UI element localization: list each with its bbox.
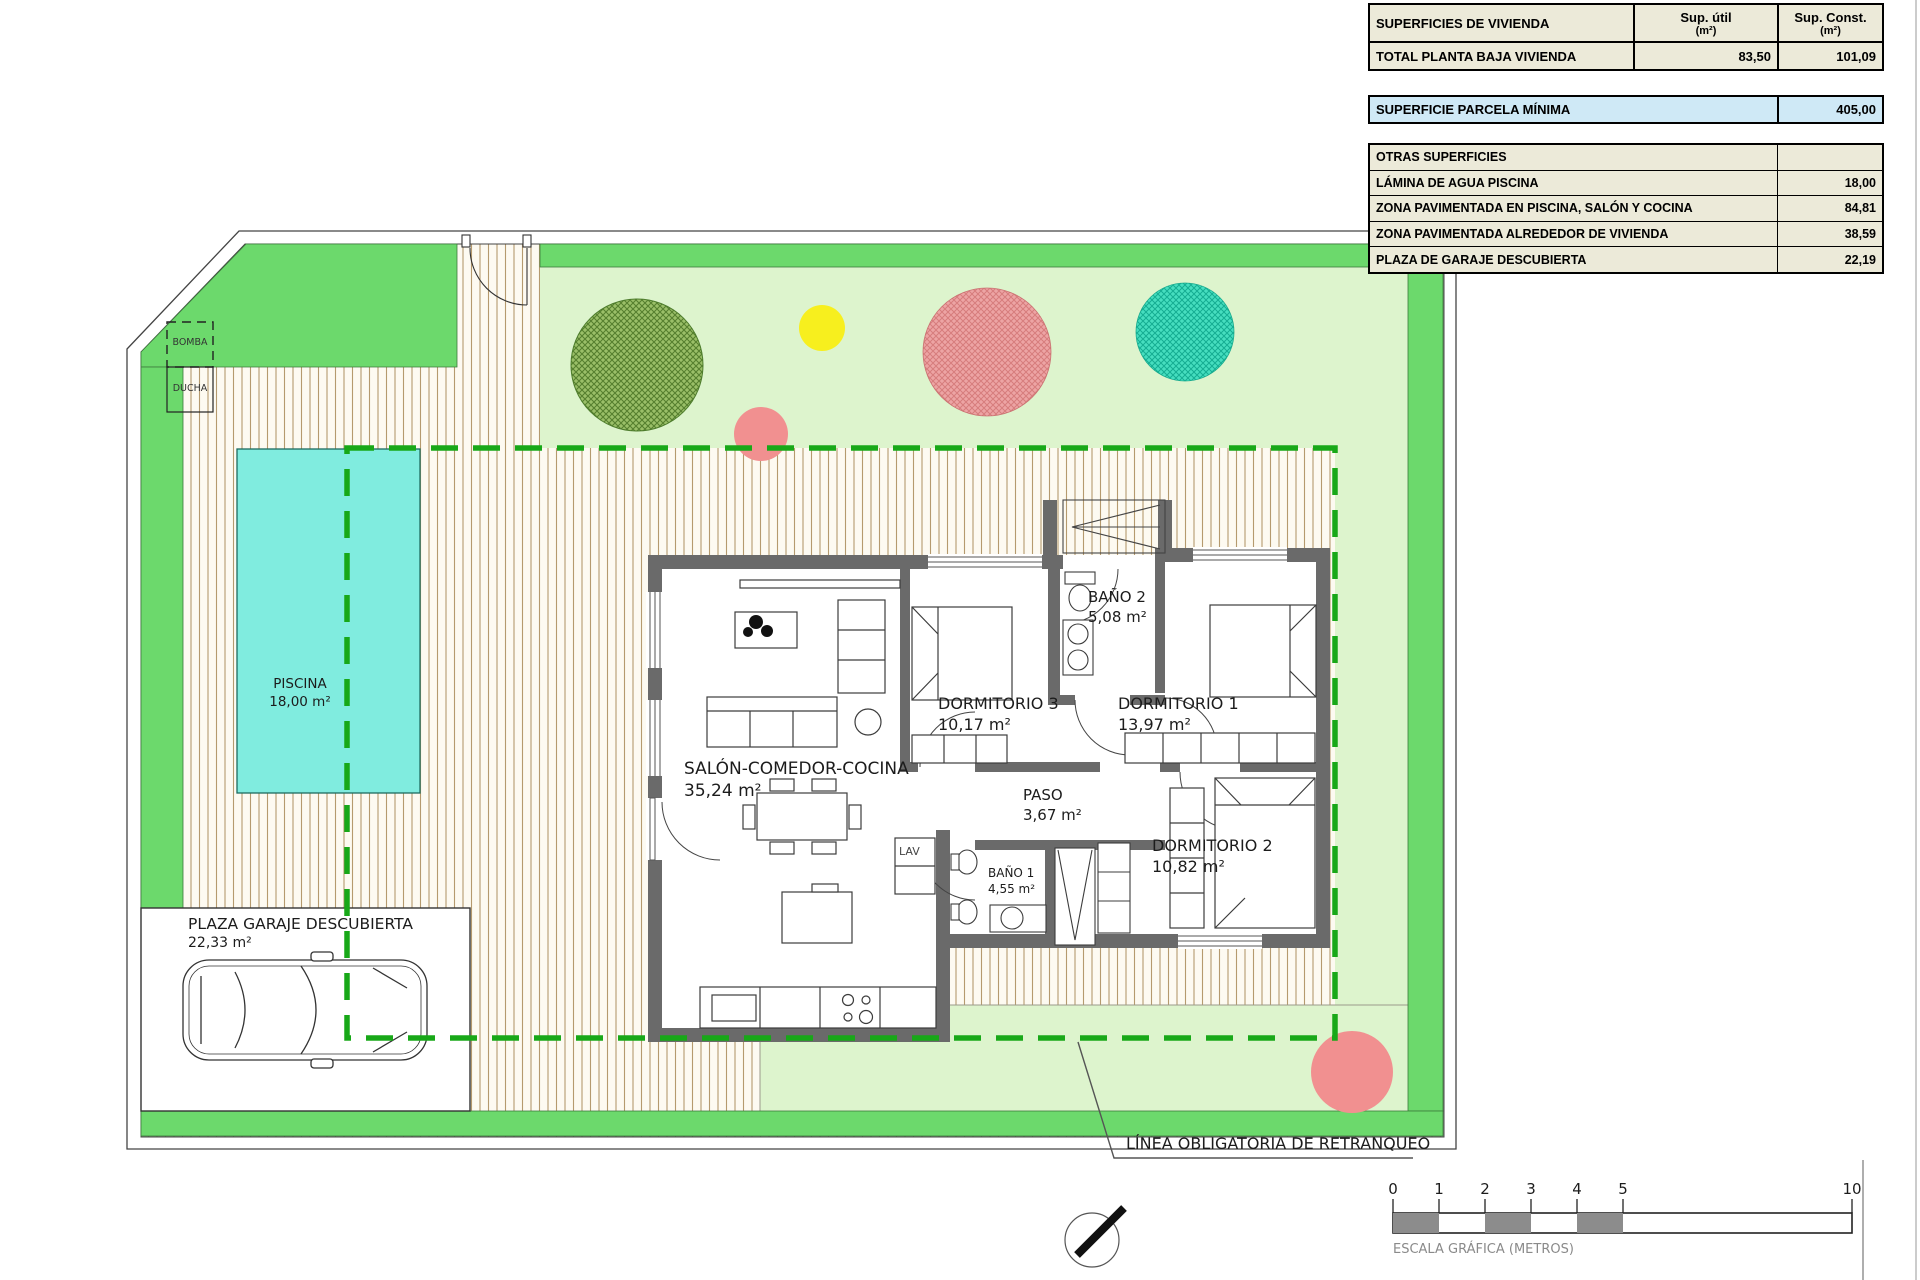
dormitorio1-area: 13,97 m² [1118,715,1239,736]
pool [237,449,420,793]
total-util-value: 83,50 [1633,43,1777,69]
otras-row-label: LÁMINA DE AGUA PISCINA [1370,171,1777,196]
dormitorio2-name: DORMITORIO 2 [1152,836,1273,855]
site-plan-page: SUPERFICIES DE VIVIENDA Sup. útil (m²) S… [0,0,1920,1280]
otras-row-value: 84,81 [1777,196,1882,221]
north-indicator-icon [1065,1208,1124,1267]
scale-caption: ESCALA GRÁFICA (METROS) [1393,1242,1574,1259]
otras-row-value: 38,59 [1777,222,1882,247]
scale-tick-2: 2 [1470,1180,1500,1200]
otras-row-label: PLAZA DE GARAJE DESCUBIERTA [1370,247,1777,272]
scale-tick-0: 0 [1378,1180,1408,1200]
dormitorio3-name: DORMITORIO 3 [938,694,1059,713]
otras-row-label: ZONA PAVIMENTADA ALREDEDOR DE VIVIENDA [1370,222,1777,247]
scale-tick-10: 10 [1837,1180,1867,1200]
scale-tick-5: 5 [1608,1180,1638,1200]
ducha-label: DUCHA [167,383,213,395]
dormitorio1-label: DORMITORIO 1 13,97 m² [1118,694,1239,736]
bano1-area: 4,55 m² [988,882,1035,898]
piscina-area: 18,00 m² [240,694,360,712]
bomba-label: BOMBA [167,337,213,349]
total-const-value: 101,09 [1777,43,1882,69]
paso-area: 3,67 m² [1023,806,1082,826]
setback-line-label: LÍNEA OBLIGATORIA DE RETRANQUEO [1126,1134,1430,1155]
bedroom3-furniture [912,607,1012,763]
otras-header: OTRAS SUPERFICIES [1370,145,1777,170]
otras-row: PLAZA DE GARAJE DESCUBIERTA 22,19 [1370,246,1882,272]
col-const-line1: Sup. Const. [1794,10,1866,25]
bano1-name: BAÑO 1 [988,866,1034,880]
tree-pink-small-icon [734,407,788,461]
otras-row: ZONA PAVIMENTADA EN PISCINA, SALÓN Y COC… [1370,195,1882,221]
col-header-sup-const: Sup. Const. (m²) [1777,5,1882,41]
piscina-label: PISCINA 18,00 m² [240,676,360,711]
garaje-label: PLAZA GARAJE DESCUBIERTA 22,33 m² [188,914,413,952]
col-const-unit: (m²) [1820,25,1841,37]
dormitorio3-label: DORMITORIO 3 10,17 m² [938,694,1059,736]
scale-tick-4: 4 [1562,1180,1592,1200]
otras-row: LÁMINA DE AGUA PISCINA 18,00 [1370,170,1882,196]
bano1-label: BAÑO 1 4,55 m² [988,866,1035,897]
bano2-label: BAÑO 2 5,08 m² [1088,588,1147,627]
salon-area: 35,24 m² [684,780,909,802]
otras-header-empty [1777,145,1882,170]
otras-row-value: 18,00 [1777,171,1882,196]
piscina-name: PISCINA [273,676,326,692]
paso-label: PASO 3,67 m² [1023,786,1082,825]
scale-tick-3: 3 [1516,1180,1546,1200]
table-title: SUPERFICIES DE VIVIENDA [1370,5,1633,41]
salon-name: SALÓN-COMEDOR-COCINA [684,759,909,779]
car-icon [183,952,427,1068]
dormitorio3-area: 10,17 m² [938,715,1059,736]
tree-teal-icon [1136,283,1234,381]
otras-row-value: 22,19 [1777,247,1882,272]
dormitorio2-label: DORMITORIO 2 10,82 m² [1152,836,1273,878]
parcela-minima-label: SUPERFICIE PARCELA MÍNIMA [1370,97,1777,122]
scale-bar [1393,1199,1852,1233]
salon-label: SALÓN-COMEDOR-COCINA 35,24 m² [684,758,909,802]
tree-pink-large-icon [923,288,1051,416]
tree-yellow-icon [799,305,845,351]
tree-pink-bottom-icon [1311,1031,1393,1113]
dormitorio1-name: DORMITORIO 1 [1118,694,1239,713]
otras-row-label: ZONA PAVIMENTADA EN PISCINA, SALÓN Y COC… [1370,196,1777,221]
scale-tick-1: 1 [1424,1180,1454,1200]
bano2-area: 5,08 m² [1088,608,1147,628]
bano2-name: BAÑO 2 [1088,588,1146,606]
col-util-unit: (m²) [1696,25,1717,37]
total-label: TOTAL PLANTA BAJA VIVIENDA [1370,43,1633,69]
hob-burner-icon [843,995,854,1006]
otras-row: ZONA PAVIMENTADA ALREDEDOR DE VIVIENDA 3… [1370,221,1882,247]
col-header-sup-util: Sup. útil (m²) [1633,5,1777,41]
tree-dark-green-icon [571,299,703,431]
otras-header-row: OTRAS SUPERFICIES [1370,145,1882,170]
lav-label: LAV [899,845,920,859]
garaje-area: 22,33 m² [188,934,413,952]
col-util-line1: Sup. útil [1680,10,1731,25]
paso-name: PASO [1023,786,1063,804]
garaje-name: PLAZA GARAJE DESCUBIERTA [188,915,413,933]
parcela-minima-value: 405,00 [1777,97,1882,122]
dormitorio2-area: 10,82 m² [1152,857,1273,878]
